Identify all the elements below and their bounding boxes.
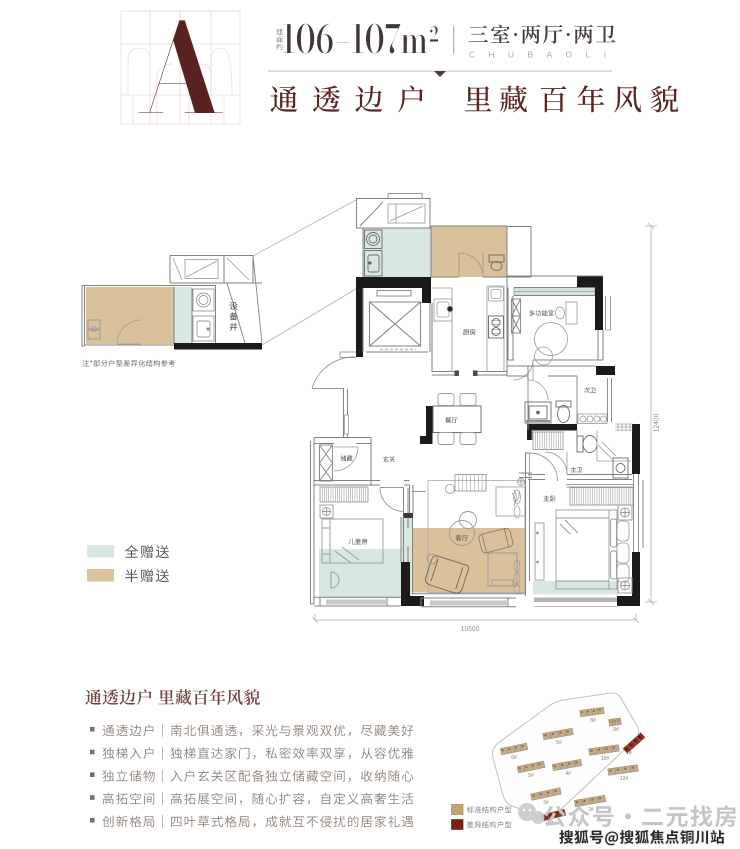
svg-text:5#: 5# (528, 773, 534, 779)
svg-text:3#: 3# (543, 800, 549, 806)
svg-text:CHUBAOLI: CHUBAOLI (469, 51, 620, 60)
svg-text:10#: 10# (601, 756, 610, 762)
svg-text:12#: 12# (620, 776, 629, 782)
svg-text:7#: 7# (626, 751, 632, 757)
svg-text:6#: 6# (511, 755, 517, 761)
svg-text:4#: 4# (565, 771, 571, 777)
svg-text:2#: 2# (588, 807, 594, 813)
svg-text:5#: 5# (556, 740, 562, 746)
svg-text:9#: 9# (613, 727, 619, 733)
svg-text:8#: 8# (590, 718, 596, 724)
